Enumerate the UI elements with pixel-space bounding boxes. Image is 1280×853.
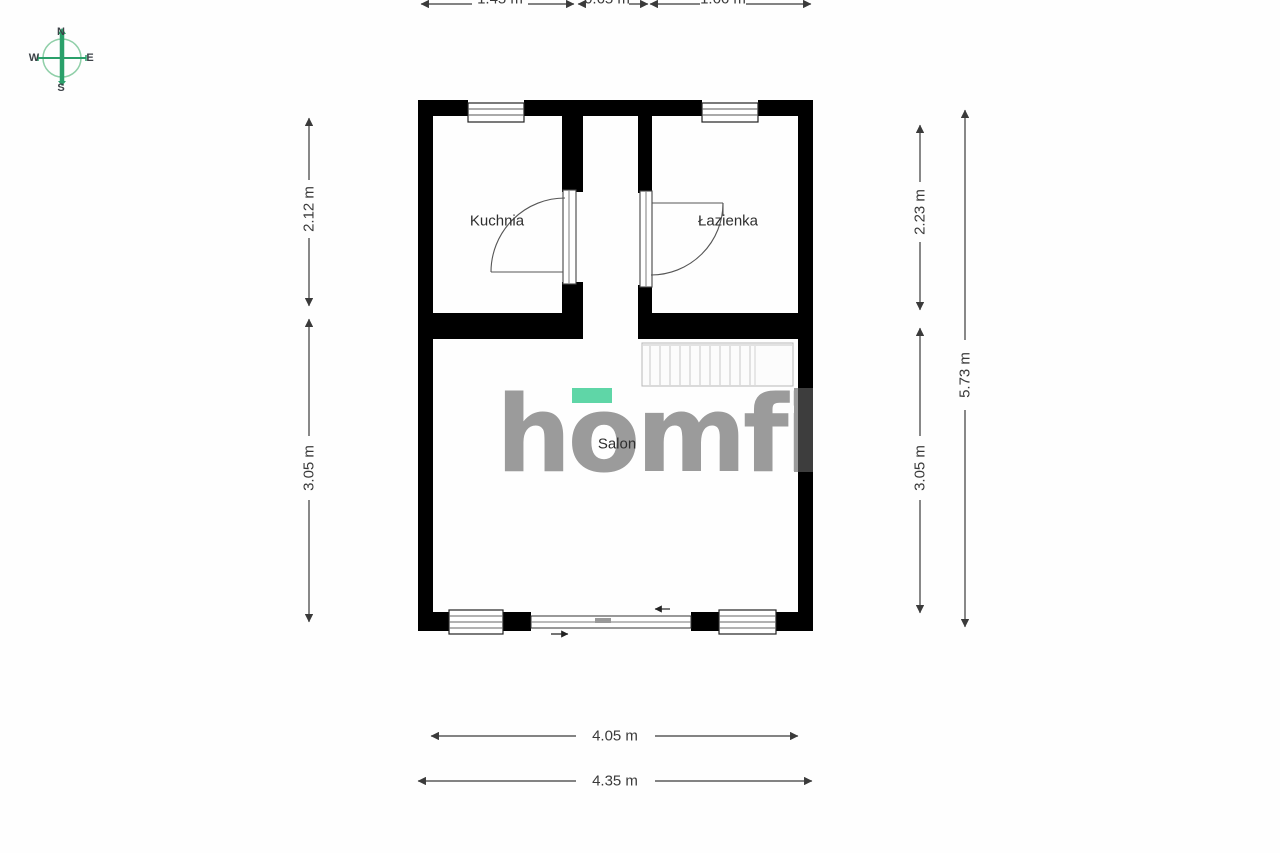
bathroom-door — [640, 191, 723, 287]
compass-north-label: N — [57, 26, 65, 38]
dim-right-2: 3.05 m — [912, 445, 929, 491]
compass-west-label: W — [29, 52, 39, 64]
dim-right-1: 2.23 m — [912, 189, 929, 235]
room-label-kitchen: Kuchnia — [470, 213, 524, 230]
kitchen-door — [491, 190, 576, 284]
dim-left-2: 3.05 m — [301, 445, 318, 491]
dim-top-1: 1.45 m — [477, 0, 523, 8]
room-label-living: Salon — [598, 436, 636, 453]
dim-top-2: 0.65 m — [584, 0, 630, 8]
compass-east-label: E — [86, 52, 93, 64]
room-label-bathroom: Łazienka — [698, 213, 758, 230]
bathroom-window — [702, 103, 758, 122]
floor-plan-page: N S W E Kuchnia Łazienka Salon 1.45 m 0.… — [0, 0, 1280, 853]
dim-top-3: 1.66 m — [700, 0, 746, 8]
watermark-side-bar-dark — [798, 388, 813, 472]
dim-bottom-2: 4.35 m — [592, 773, 638, 790]
dim-right-3: 5.73 m — [957, 352, 974, 398]
living-sliding-door — [531, 616, 691, 628]
kitchen-window — [468, 103, 524, 122]
living-window-left — [449, 610, 503, 634]
dim-left-1: 2.12 m — [301, 186, 318, 232]
living-window-right — [719, 610, 776, 634]
dim-bottom-1: 4.05 m — [592, 728, 638, 745]
homfi-watermark: homfi — [496, 382, 817, 488]
compass-south-label: S — [57, 82, 64, 94]
